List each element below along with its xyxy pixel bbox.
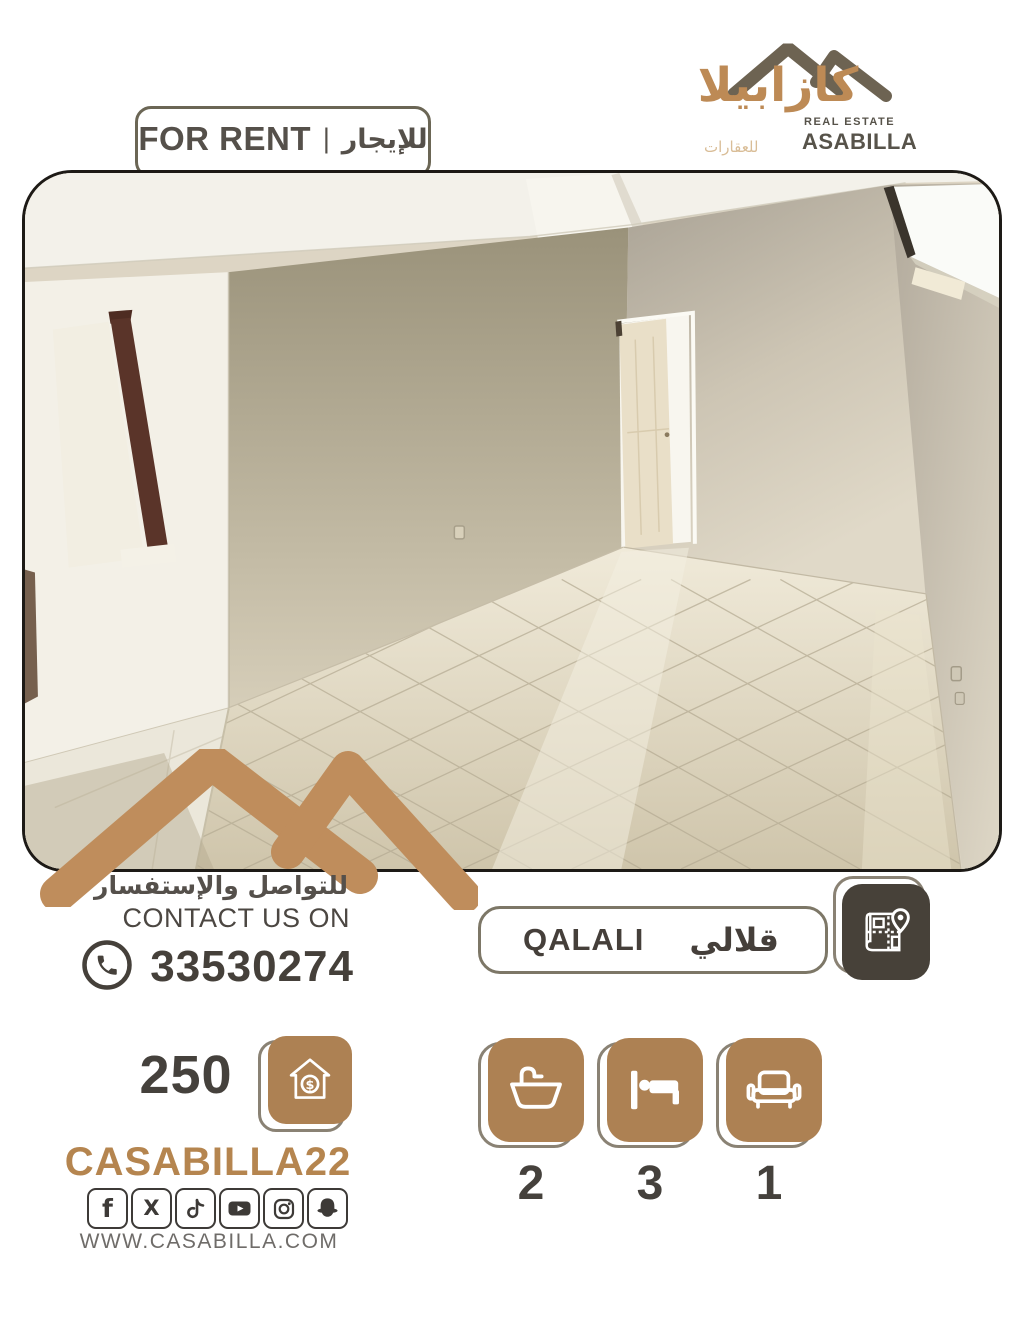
- banner-divider: |: [322, 124, 331, 154]
- social-handle: CASABILLA22: [58, 1140, 358, 1185]
- contact-heading-arabic: للتواصل والإستفسار: [60, 870, 354, 901]
- phone-number[interactable]: 33530274: [150, 942, 354, 992]
- website-url[interactable]: WWW.CASABILLA.COM: [53, 1230, 365, 1254]
- for-rent-banner: FOR RENT | للإيجار: [135, 106, 431, 178]
- logo-tagline: REAL ESTATE: [804, 116, 895, 128]
- living-rooms-tile: [716, 1038, 822, 1150]
- tiktok-icon[interactable]: [175, 1188, 216, 1229]
- price-amount: 250: [128, 1044, 244, 1106]
- snapchat-icon[interactable]: [307, 1188, 348, 1229]
- location-name-en: QALALI: [523, 922, 644, 958]
- contact-heading-english: CONTACT US ON: [60, 903, 354, 934]
- location-name-ar: قلالي: [689, 921, 779, 959]
- bathtub-icon: [488, 1038, 584, 1142]
- instagram-icon[interactable]: [263, 1188, 304, 1229]
- phone-icon: [80, 938, 134, 996]
- svg-text:$: $: [306, 1078, 315, 1093]
- logo-arabic-name: كازابيلا: [652, 62, 904, 109]
- map-location-tile: [833, 876, 933, 982]
- map-location-icon: [842, 884, 930, 980]
- facebook-icon[interactable]: f: [87, 1188, 128, 1229]
- for-rent-label-ar: للإيجار: [342, 124, 428, 155]
- for-rent-label-en: FOR RENT: [138, 120, 311, 158]
- flyer-page: FOR RENT | للإيجار كازابيلا REAL ESTATE …: [0, 0, 1024, 1325]
- house-dollar-icon: $: [268, 1036, 352, 1124]
- logo-latin-name: ASABILLA: [802, 129, 917, 155]
- bedrooms-count: 3: [597, 1156, 703, 1211]
- bed-icon: [607, 1038, 703, 1142]
- logo-arabic-subtitle: للعقارات: [704, 138, 758, 156]
- brand-logo: كازابيلا REAL ESTATE ASABILLA للعقارات: [652, 38, 920, 168]
- social-icons-row: f X: [87, 1188, 348, 1229]
- contact-block: للتواصل والإستفسار CONTACT US ON 3353027…: [60, 870, 354, 996]
- bathrooms-tile: [478, 1038, 584, 1150]
- living-rooms-count: 1: [716, 1156, 822, 1211]
- price-tile: $: [258, 1036, 352, 1134]
- bathrooms-count: 2: [478, 1156, 584, 1211]
- youtube-icon[interactable]: [219, 1188, 260, 1229]
- x-icon[interactable]: X: [131, 1188, 172, 1229]
- location-badge: QALALI قلالي: [478, 906, 828, 974]
- bedrooms-tile: [597, 1038, 703, 1150]
- sofa-icon: [726, 1038, 822, 1142]
